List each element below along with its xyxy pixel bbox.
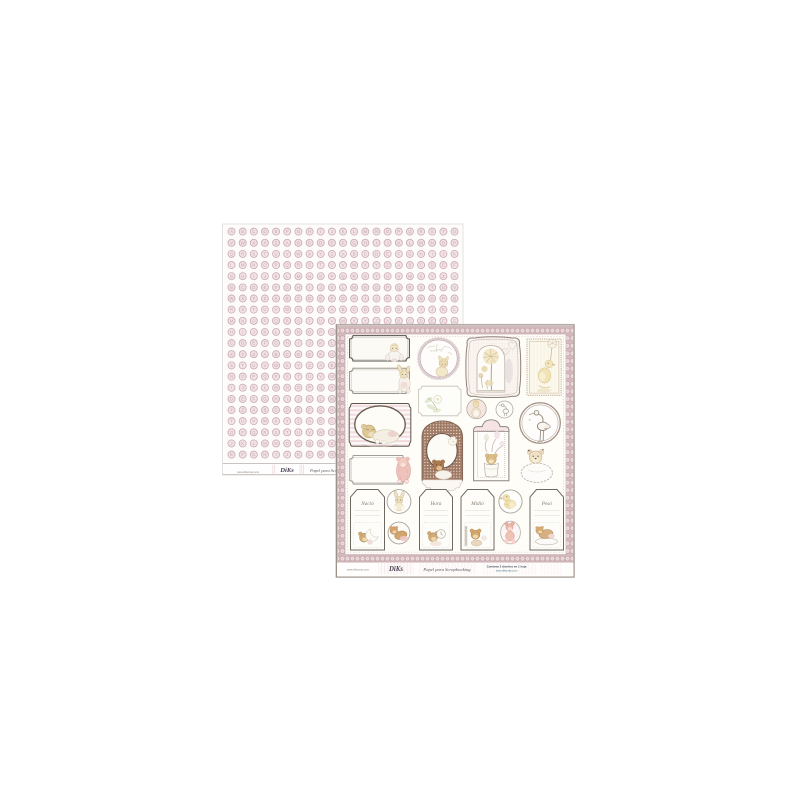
svg-text:Contiene 2 diseños en 1 hoja: Contiene 2 diseños en 1 hoja [487, 565, 527, 569]
svg-text:Nació: Nació [360, 501, 374, 507]
svg-text:LMNOPQRSTUVWXYZABCDEF: LMNOPQRSTUVWXYZABCDEF [230, 263, 456, 268]
svg-text:Papel para Scrapbooking: Papel para Scrapbooking [422, 567, 471, 572]
svg-text:www.dikscrap.com: www.dikscrap.com [496, 568, 517, 572]
svg-text:DiKs: DiKs [279, 467, 294, 474]
svg-text:DiKs: DiKs [388, 566, 403, 573]
svg-text:www.dikscrap.com: www.dikscrap.com [237, 470, 260, 474]
svg-text:Pesó: Pesó [541, 501, 552, 507]
svg-text:Papel para Scra: Papel para Scra [309, 468, 340, 473]
svg-text:BCDEFGHIJKLMNOPQRSTUV: BCDEFGHIJKLMNOPQRSTUV [230, 285, 456, 290]
svg-text:QRSTUVWXYZABCDEFGHIJK: QRSTUVWXYZABCDEFGHIJK [230, 252, 456, 257]
svg-text:ABCDEFGHIJKLMNOPQRSTU: ABCDEFGHIJKLMNOPQRSTU [230, 229, 456, 234]
svg-text:GHIJKLMNOPQRSTUVWXYZA: GHIJKLMNOPQRSTUVWXYZA [230, 274, 456, 279]
svg-text:VWXYZABCDEFGHIJKLMNOP: VWXYZABCDEFGHIJKLMNOP [230, 240, 456, 245]
svg-text:Hora: Hora [430, 501, 442, 507]
svg-text:Midió: Midió [470, 501, 484, 507]
svg-text:www.dikscrap.com: www.dikscrap.com [347, 568, 370, 572]
